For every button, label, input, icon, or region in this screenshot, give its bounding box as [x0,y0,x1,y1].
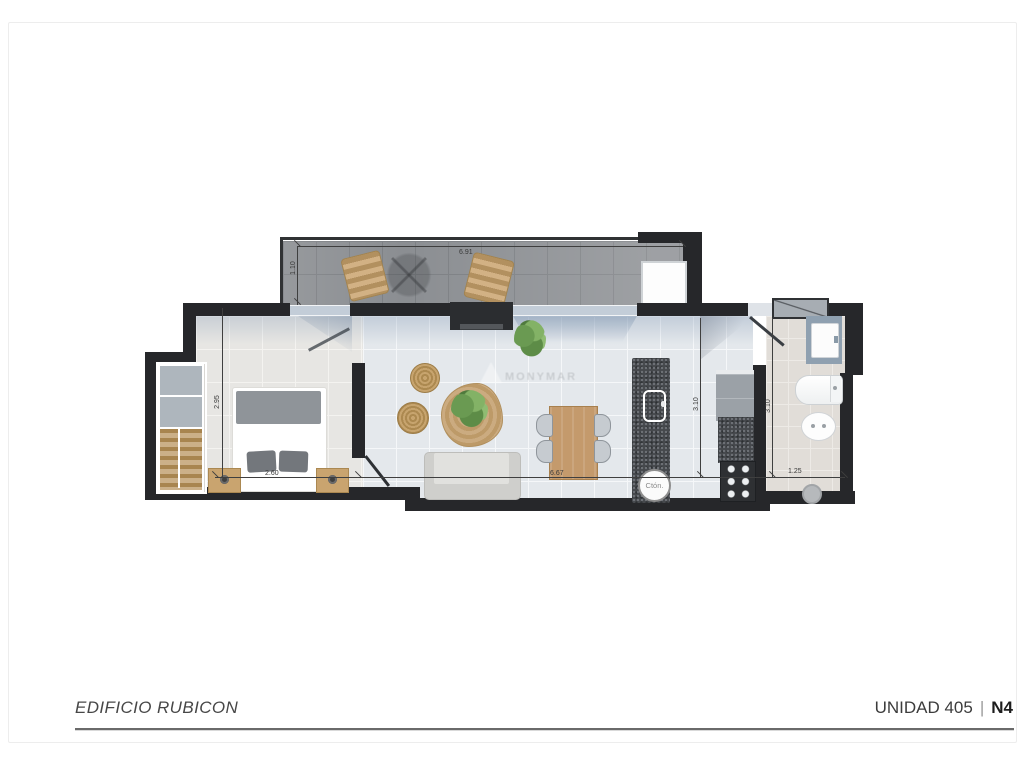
unit-label: UNIDAD 405|N4 [875,698,1013,718]
wall [637,303,702,316]
dim-kitchen-depth: 3.10 [693,397,701,411]
bedroom-sliding-door [290,305,350,316]
ceiling-fan-icon [385,251,433,299]
dim-bedroom-depth: 2.95 [214,395,222,409]
bed-duvet [236,391,321,424]
dining-chair [536,414,553,437]
faucet-icon [834,336,838,343]
dim-line-bath-depth [772,318,773,477]
unit-name: UNIDAD 405 [875,698,973,717]
bedroom-partition-wall [352,363,365,458]
dining-chair [594,440,611,463]
wall [183,303,290,316]
terrace-railing-left [280,237,283,309]
closet-shelf [158,395,204,429]
water-heater-label: Ctón. [646,481,664,490]
floor-plan-page: Ctón. 6.91 1.10 2.60 6.67 1.25 2.95 3.10… [0,0,1024,768]
building-title: EDIFICIO RUBICON [75,698,238,718]
dining-chair [594,414,611,437]
dim-line-terrace-width [297,246,683,247]
tv [460,324,503,330]
dim-line-bedroom-depth [222,308,223,477]
watermark: MONYMAR [478,360,598,394]
bidet [801,412,836,441]
closet-rod [178,427,180,488]
wall [145,352,156,500]
pouf [397,402,429,434]
dining-chair [536,440,553,463]
dim-living-width: 6.67 [550,470,564,478]
living-sliding-door [513,305,637,316]
watermark-text: MONYMAR [505,371,577,383]
stove [720,461,756,502]
pillow [279,451,309,473]
bidet-tap-icon [822,424,826,428]
dining-table [549,406,598,480]
footer-divider [75,728,1014,731]
faucet-icon [661,401,665,407]
flush-button-icon [833,386,837,390]
plant-icon [514,320,546,358]
closet-hanging-clothes [158,427,204,492]
kitchen-counter [718,417,754,463]
dim-terrace-width: 6.91 [459,249,473,257]
plant-icon [451,390,488,428]
refrigerator [716,370,754,421]
nightstand [316,468,349,493]
dim-bathroom-width: 1.25 [788,468,802,476]
bidet-tap-icon [811,424,815,428]
dim-bathroom-depth: 3.10 [765,399,773,413]
dim-bedroom-width: 2.60 [265,470,279,478]
unit-separator: | [980,698,984,717]
unit-code: N4 [991,698,1013,717]
wall [700,303,748,316]
dim-terrace-depth: 1.10 [290,261,298,275]
closet-shelf [158,364,204,397]
wall [845,303,863,375]
entry-opening [748,303,772,316]
dim-line-terrace-depth [297,246,298,305]
water-heater-badge: Ctón. [638,469,671,502]
sofa-seat [434,453,509,484]
watermark-logo-icon [480,362,502,383]
shower-drain-icon [802,484,822,504]
pouf [410,363,440,393]
wall [350,303,455,316]
dim-line-main [215,477,845,478]
